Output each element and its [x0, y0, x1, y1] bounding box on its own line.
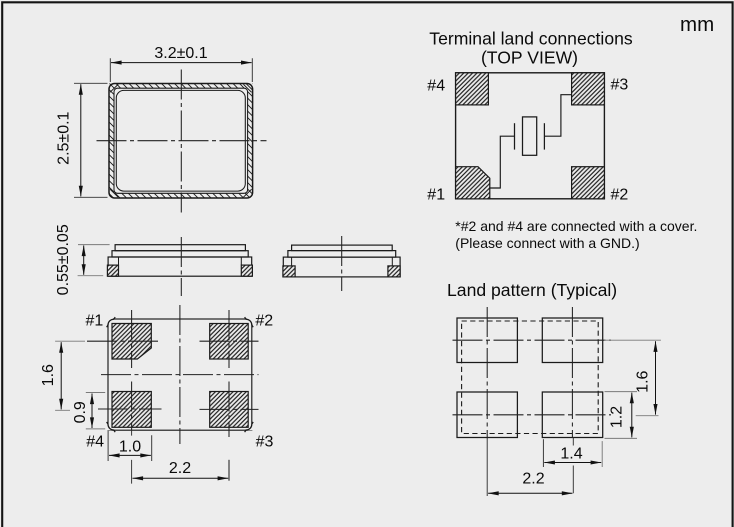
svg-text:#4: #4	[427, 77, 445, 94]
svg-text:*#2 and #4 are connected with: *#2 and #4 are connected with a cover.	[455, 218, 697, 234]
svg-text:#1: #1	[427, 186, 445, 203]
svg-text:#4: #4	[86, 434, 104, 451]
svg-text:1.2: 1.2	[609, 406, 626, 428]
svg-text:mm: mm	[680, 13, 714, 36]
svg-text:#3: #3	[611, 76, 629, 93]
svg-text:(Please connect with a GND.): (Please connect with a GND.)	[455, 235, 639, 251]
svg-text:0.55±0.05: 0.55±0.05	[55, 224, 72, 295]
svg-text:#1: #1	[86, 313, 104, 330]
svg-text:2.5±0.1: 2.5±0.1	[56, 111, 73, 164]
svg-text:0.9: 0.9	[72, 401, 89, 423]
svg-text:1.6: 1.6	[635, 370, 652, 392]
svg-text:1.0: 1.0	[119, 438, 141, 455]
svg-text:#2: #2	[611, 186, 629, 203]
svg-text:Terminal land connections: Terminal land connections	[429, 29, 633, 49]
svg-text:Land pattern (Typical): Land pattern (Typical)	[447, 280, 617, 300]
svg-text:1.4: 1.4	[560, 446, 582, 463]
svg-text:2.2: 2.2	[522, 471, 544, 488]
svg-text:3.2±0.1: 3.2±0.1	[154, 45, 207, 62]
svg-text:2.2: 2.2	[169, 460, 191, 477]
svg-text:1.6: 1.6	[40, 364, 57, 386]
svg-text:#3: #3	[256, 434, 274, 451]
svg-text:(TOP VIEW): (TOP VIEW)	[481, 48, 578, 68]
svg-text:#2: #2	[255, 313, 273, 330]
